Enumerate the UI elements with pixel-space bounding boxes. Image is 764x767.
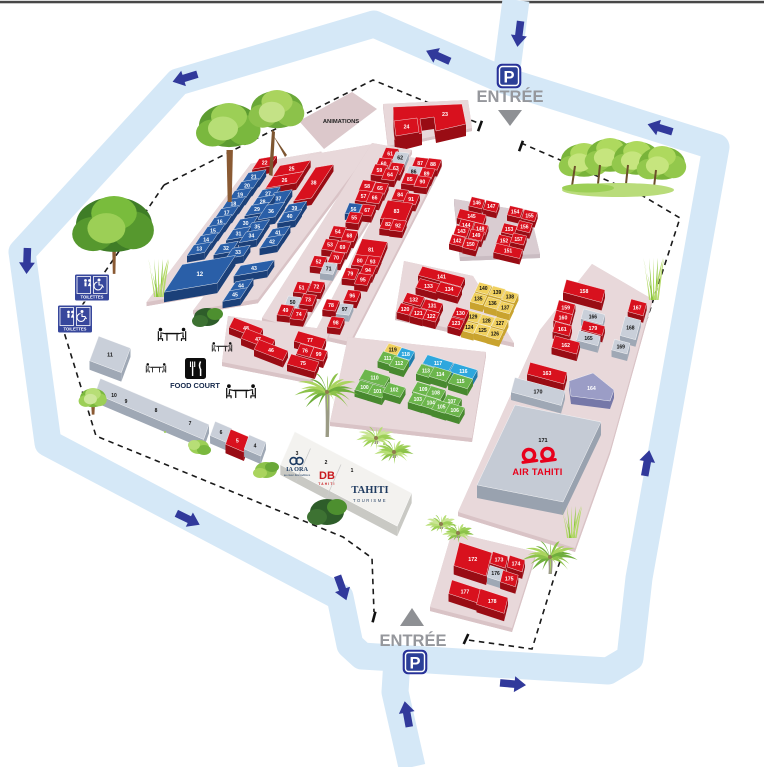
svg-text:102: 102: [390, 388, 399, 394]
svg-text:35: 35: [254, 224, 260, 230]
svg-text:106: 106: [451, 408, 460, 414]
svg-text:54: 54: [335, 230, 341, 236]
svg-text:ENTRÉE: ENTRÉE: [380, 631, 447, 650]
svg-text:TAHITI: TAHITI: [318, 482, 335, 486]
svg-text:46: 46: [268, 348, 274, 354]
svg-text:124: 124: [465, 325, 474, 331]
svg-text:99: 99: [316, 352, 322, 358]
svg-text:92: 92: [395, 224, 401, 230]
svg-text:88: 88: [430, 162, 436, 168]
svg-text:DB: DB: [319, 470, 335, 482]
svg-text:42: 42: [269, 239, 275, 245]
svg-text:154: 154: [511, 210, 520, 216]
svg-text:135: 135: [474, 297, 483, 303]
svg-text:13: 13: [196, 247, 202, 253]
svg-text:84: 84: [397, 193, 403, 199]
svg-text:64: 64: [387, 173, 393, 179]
svg-text:109: 109: [419, 387, 428, 393]
svg-text:26: 26: [282, 178, 288, 184]
svg-text:67: 67: [364, 208, 370, 214]
svg-text:55: 55: [351, 216, 357, 222]
svg-text:131: 131: [428, 304, 437, 310]
svg-text:141: 141: [437, 274, 446, 280]
svg-text:49: 49: [283, 308, 289, 314]
svg-text:108: 108: [432, 391, 441, 397]
svg-text:6: 6: [220, 430, 223, 436]
svg-text:71: 71: [326, 266, 332, 272]
svg-text:175: 175: [505, 576, 514, 582]
svg-text:TOILETTES: TOILETTES: [64, 327, 87, 332]
svg-text:121: 121: [414, 311, 423, 317]
svg-text:74: 74: [296, 312, 302, 318]
svg-text:123: 123: [452, 321, 461, 327]
svg-text:98: 98: [333, 320, 339, 326]
svg-text:70: 70: [333, 256, 339, 262]
svg-text:136: 136: [488, 301, 497, 307]
svg-text:73: 73: [305, 298, 311, 304]
svg-text:171: 171: [538, 438, 547, 444]
svg-text:94: 94: [365, 268, 371, 274]
svg-text:138: 138: [506, 295, 515, 301]
svg-text:8: 8: [155, 408, 158, 414]
svg-text:82: 82: [385, 222, 391, 228]
svg-text:129: 129: [469, 315, 478, 321]
svg-text:127: 127: [496, 321, 505, 327]
svg-text:83: 83: [394, 209, 400, 215]
svg-text:37: 37: [276, 196, 282, 202]
svg-text:117: 117: [434, 361, 442, 367]
svg-text:147: 147: [487, 204, 496, 210]
svg-text:163: 163: [543, 371, 552, 377]
svg-text:168: 168: [626, 326, 635, 332]
svg-text:36: 36: [268, 209, 274, 215]
svg-text:30: 30: [243, 221, 249, 227]
svg-text:66: 66: [372, 196, 378, 202]
svg-text:128: 128: [482, 318, 491, 324]
svg-text:76: 76: [302, 348, 308, 354]
svg-text:ANIMATIONS: ANIMATIONS: [323, 119, 359, 125]
svg-text:110: 110: [371, 376, 379, 382]
svg-text:80: 80: [357, 258, 363, 264]
svg-text:160: 160: [559, 316, 568, 322]
svg-text:149: 149: [472, 233, 481, 239]
svg-text:100: 100: [360, 385, 369, 391]
svg-text:TAHITI: TAHITI: [351, 485, 388, 496]
svg-text:153: 153: [505, 227, 514, 233]
svg-text:111: 111: [384, 356, 392, 362]
svg-text:77: 77: [307, 338, 313, 344]
svg-text:159: 159: [561, 305, 570, 311]
svg-text:5: 5: [236, 439, 239, 445]
svg-text:97: 97: [342, 307, 348, 313]
svg-text:au coeur des traditions: au coeur des traditions: [284, 473, 311, 477]
svg-text:125: 125: [478, 328, 487, 334]
svg-text:139: 139: [493, 290, 502, 296]
svg-text:91: 91: [408, 197, 414, 203]
svg-text:130: 130: [456, 311, 465, 317]
svg-text:24: 24: [404, 125, 410, 131]
svg-text:155: 155: [525, 213, 534, 219]
svg-text:120: 120: [401, 307, 410, 313]
svg-text:126: 126: [491, 332, 500, 338]
svg-text:34: 34: [249, 234, 255, 240]
svg-text:172: 172: [468, 557, 477, 563]
svg-text:87: 87: [417, 161, 423, 167]
svg-text:132: 132: [409, 297, 418, 303]
svg-text:P: P: [409, 653, 420, 672]
svg-text:65: 65: [377, 186, 383, 192]
svg-text:162: 162: [561, 343, 570, 349]
svg-text:TOILETTES: TOILETTES: [81, 295, 104, 300]
svg-text:90: 90: [420, 180, 426, 186]
svg-text:81: 81: [368, 247, 374, 253]
svg-text:96: 96: [349, 294, 355, 300]
svg-text:145: 145: [467, 214, 476, 220]
svg-text:114: 114: [436, 372, 444, 378]
svg-text:93: 93: [370, 260, 376, 266]
svg-text:40: 40: [287, 214, 293, 220]
svg-text:140: 140: [479, 286, 488, 292]
svg-text:52: 52: [316, 260, 322, 266]
svg-text:103: 103: [414, 397, 423, 403]
svg-text:1: 1: [351, 468, 354, 474]
svg-text:116: 116: [459, 369, 467, 375]
svg-text:22: 22: [262, 160, 268, 166]
svg-text:134: 134: [445, 287, 454, 293]
svg-text:142: 142: [453, 238, 462, 244]
svg-text:161: 161: [558, 327, 567, 333]
svg-text:165: 165: [584, 336, 593, 342]
svg-text:7: 7: [189, 421, 192, 427]
svg-text:164: 164: [587, 386, 596, 392]
svg-text:177: 177: [461, 589, 470, 595]
svg-text:57: 57: [361, 194, 367, 200]
svg-text:9: 9: [125, 399, 128, 405]
svg-text:95: 95: [360, 277, 366, 283]
svg-text:78: 78: [328, 303, 334, 309]
svg-text:IA ORA: IA ORA: [286, 466, 308, 473]
svg-text:137: 137: [501, 305, 510, 311]
svg-text:12: 12: [196, 272, 203, 278]
svg-text:2: 2: [325, 460, 328, 466]
svg-text:11: 11: [107, 352, 113, 358]
svg-text:170: 170: [534, 389, 543, 395]
svg-text:158: 158: [580, 289, 589, 295]
svg-text:33: 33: [235, 250, 241, 256]
svg-text:166: 166: [589, 314, 598, 320]
svg-text:53: 53: [327, 243, 333, 249]
svg-text:119: 119: [389, 347, 397, 353]
svg-text:10: 10: [111, 393, 117, 399]
svg-text:101: 101: [373, 389, 382, 395]
svg-text:72: 72: [314, 285, 320, 291]
svg-text:32: 32: [223, 246, 229, 252]
svg-text:143: 143: [457, 229, 466, 235]
svg-text:152: 152: [500, 238, 509, 244]
svg-text:43: 43: [251, 266, 257, 272]
svg-text:105: 105: [437, 404, 446, 410]
svg-text:29: 29: [254, 207, 260, 213]
svg-text:23: 23: [442, 112, 448, 118]
svg-text:FOOD COURT: FOOD COURT: [170, 381, 220, 390]
svg-text:118: 118: [402, 352, 410, 358]
svg-text:69: 69: [340, 245, 346, 251]
svg-text:115: 115: [456, 379, 464, 385]
svg-text:173: 173: [495, 558, 504, 564]
svg-text:122: 122: [427, 314, 436, 320]
svg-text:58: 58: [364, 184, 370, 190]
svg-text:156: 156: [520, 224, 529, 230]
svg-text:62: 62: [397, 156, 403, 162]
svg-text:51: 51: [299, 285, 305, 291]
svg-text:146: 146: [473, 201, 482, 207]
svg-text:176: 176: [491, 571, 500, 577]
svg-text:150: 150: [466, 242, 475, 248]
svg-text:68: 68: [347, 234, 353, 240]
svg-text:ENTRÉE: ENTRÉE: [477, 87, 544, 106]
svg-text:25: 25: [289, 167, 295, 173]
svg-text:3: 3: [296, 451, 299, 457]
svg-text:112: 112: [395, 361, 403, 367]
svg-text:45: 45: [232, 292, 238, 298]
svg-text:38: 38: [311, 181, 317, 187]
svg-text:179: 179: [589, 326, 598, 332]
svg-text:151: 151: [504, 249, 513, 255]
svg-text:4: 4: [254, 443, 257, 449]
svg-text:157: 157: [514, 237, 523, 243]
svg-text:174: 174: [512, 562, 521, 568]
svg-text:TOURISME: TOURISME: [353, 498, 387, 503]
svg-text:59: 59: [377, 168, 383, 174]
svg-text:178: 178: [488, 599, 497, 605]
svg-text:31: 31: [236, 231, 242, 237]
svg-text:167: 167: [633, 305, 642, 311]
svg-text:113: 113: [422, 369, 430, 375]
svg-text:169: 169: [617, 344, 626, 350]
svg-text:133: 133: [424, 284, 433, 290]
svg-text:79: 79: [348, 272, 354, 278]
svg-text:61: 61: [387, 151, 393, 157]
svg-text:AIR TAHITI: AIR TAHITI: [512, 467, 562, 477]
svg-text:75: 75: [300, 361, 306, 367]
svg-text:50: 50: [290, 300, 296, 306]
svg-text:P: P: [503, 67, 514, 86]
svg-text:85: 85: [407, 177, 413, 183]
